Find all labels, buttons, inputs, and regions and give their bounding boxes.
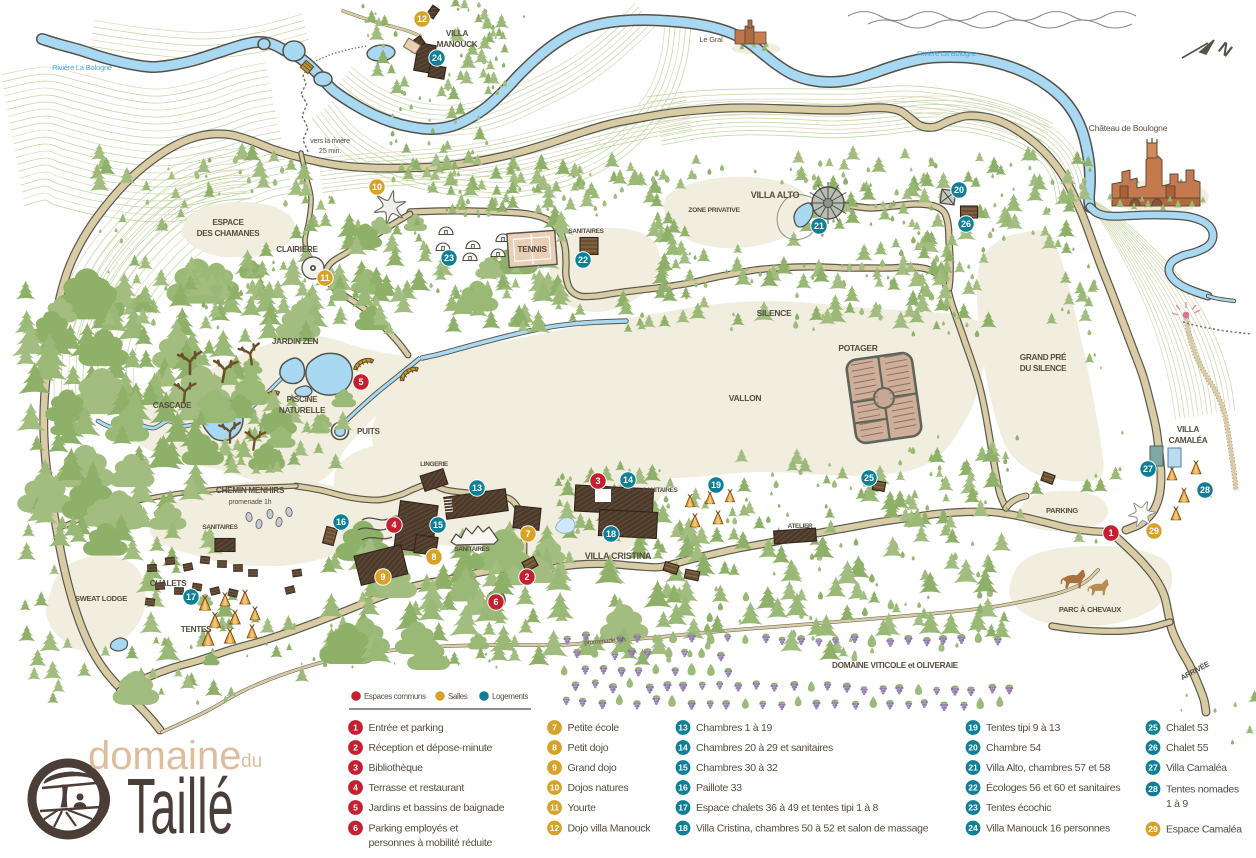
svg-text:DES CHAMANES: DES CHAMANES: [197, 229, 261, 238]
svg-text:14: 14: [678, 743, 688, 753]
svg-text:22: 22: [968, 783, 978, 793]
svg-text:SANITAIRES: SANITAIRES: [454, 546, 490, 553]
svg-text:Tentes écochic: Tentes écochic: [986, 802, 1051, 814]
svg-text:CLAIRIÈRE: CLAIRIÈRE: [276, 244, 318, 254]
svg-text:28: 28: [1148, 784, 1158, 794]
svg-text:PISCINE: PISCINE: [287, 395, 318, 404]
svg-text:VILLA ALTO: VILLA ALTO: [751, 190, 800, 200]
svg-text:PARC À CHEVAUX: PARC À CHEVAUX: [1059, 605, 1121, 614]
svg-text:Jardins et bassins de baignade: Jardins et bassins de baignade: [369, 802, 505, 814]
svg-text:Entrée et parking: Entrée et parking: [369, 722, 444, 734]
svg-text:Villa Cristina, chambres 50 à: Villa Cristina, chambres 50 à 52 et salo…: [696, 823, 929, 835]
svg-text:Tentes nomades: Tentes nomades: [1166, 784, 1239, 796]
svg-text:17: 17: [678, 803, 688, 813]
svg-text:18: 18: [606, 529, 616, 539]
svg-text:VILLA CRISTINA: VILLA CRISTINA: [585, 551, 652, 561]
svg-text:14: 14: [623, 475, 633, 485]
svg-text:Yourte: Yourte: [568, 802, 597, 814]
svg-text:PUITS: PUITS: [357, 427, 380, 436]
svg-text:Chalet 53: Chalet 53: [1166, 722, 1209, 734]
svg-text:SANITAIRES: SANITAIRES: [202, 524, 238, 531]
svg-text:Chalet 55: Chalet 55: [1166, 742, 1209, 754]
svg-text:9: 9: [552, 763, 557, 773]
svg-text:TENTES: TENTES: [181, 625, 212, 634]
svg-text:25: 25: [864, 473, 874, 483]
svg-text:11: 11: [550, 803, 559, 813]
svg-text:4: 4: [391, 520, 396, 530]
svg-text:CASCADE: CASCADE: [153, 401, 192, 410]
svg-text:6: 6: [353, 823, 358, 833]
svg-text:Salles: Salles: [448, 692, 468, 701]
svg-text:22: 22: [578, 255, 588, 265]
svg-text:CHEMIN MENHIRS: CHEMIN MENHIRS: [216, 486, 285, 495]
svg-text:Petit dojo: Petit dojo: [568, 742, 609, 754]
svg-text:27: 27: [1148, 763, 1158, 773]
svg-text:POTAGER: POTAGER: [838, 343, 877, 353]
svg-text:ESPACE: ESPACE: [212, 218, 244, 227]
svg-text:29: 29: [1149, 526, 1159, 536]
svg-text:Tentes tipi 9 à 13: Tentes tipi 9 à 13: [986, 722, 1060, 734]
svg-text:25 min.: 25 min.: [319, 146, 341, 155]
svg-text:3: 3: [353, 763, 358, 773]
svg-text:19: 19: [711, 480, 721, 490]
svg-text:21: 21: [968, 763, 978, 773]
svg-text:12: 12: [417, 14, 427, 24]
svg-text:Bibliothèque: Bibliothèque: [369, 762, 424, 774]
svg-text:PARKING: PARKING: [1046, 506, 1078, 515]
svg-text:Villa Manouck 16 personnes: Villa Manouck 16 personnes: [986, 823, 1110, 835]
svg-text:JARDIN ZEN: JARDIN ZEN: [272, 337, 319, 346]
svg-text:Logements: Logements: [492, 692, 528, 701]
svg-text:13: 13: [472, 483, 482, 493]
svg-text:CHALETS: CHALETS: [150, 579, 187, 588]
svg-text:Écologes 56 et 60 et sanitaire: Écologes 56 et 60 et sanitaires: [986, 781, 1120, 794]
svg-text:21: 21: [814, 221, 824, 231]
svg-text:Chambres 1 à 19: Chambres 1 à 19: [696, 722, 773, 734]
svg-text:Chambres 30 à 32: Chambres 30 à 32: [696, 762, 778, 774]
svg-text:Petite école: Petite école: [568, 722, 620, 734]
svg-text:VILLA: VILLA: [446, 29, 469, 38]
svg-text:17: 17: [186, 592, 196, 602]
svg-text:Espace Camaléa: Espace Camaléa: [1166, 824, 1242, 836]
svg-text:28: 28: [1200, 485, 1210, 495]
svg-text:15: 15: [433, 520, 443, 530]
svg-text:9: 9: [380, 572, 385, 582]
svg-text:Rivière La Bologne: Rivière La Bologne: [52, 63, 112, 72]
svg-text:26: 26: [1148, 743, 1158, 753]
svg-text:5: 5: [358, 377, 363, 387]
svg-text:DOMAINE VITICOLE et OLIVERAIE: DOMAINE VITICOLE et OLIVERAIE: [832, 661, 959, 670]
svg-text:ZONE PRIVATIVE: ZONE PRIVATIVE: [688, 207, 740, 214]
svg-text:20: 20: [968, 743, 978, 753]
svg-text:DU SILENCE: DU SILENCE: [1020, 364, 1067, 373]
svg-text:Villa Camaléa: Villa Camaléa: [1166, 762, 1227, 774]
svg-text:4: 4: [353, 783, 358, 793]
svg-text:11: 11: [320, 273, 330, 283]
svg-text:25: 25: [1148, 723, 1158, 733]
svg-text:personnes à mobilité réduite: personnes à mobilité réduite: [369, 837, 493, 849]
svg-text:Le Gral: Le Gral: [699, 35, 723, 44]
svg-text:18: 18: [678, 823, 688, 833]
svg-text:8: 8: [431, 552, 436, 562]
svg-text:Dojos natures: Dojos natures: [568, 782, 629, 794]
svg-text:10: 10: [550, 783, 560, 793]
svg-text:SANITAIRES: SANITAIRES: [568, 228, 604, 235]
svg-text:SANITAIRES: SANITAIRES: [642, 487, 678, 494]
svg-text:Chambre 54: Chambre 54: [986, 742, 1041, 754]
svg-text:23: 23: [444, 253, 454, 263]
svg-text:SWEAT LODGE: SWEAT LODGE: [75, 594, 127, 603]
svg-text:Chambres 20 à 29 et sanitaires: Chambres 20 à 29 et sanitaires: [696, 742, 833, 754]
svg-text:26: 26: [961, 219, 971, 229]
svg-text:Château de Boulogne: Château de Boulogne: [1089, 123, 1168, 133]
svg-text:Espaces communs: Espaces communs: [364, 692, 426, 701]
svg-text:Taillé: Taillé: [127, 763, 234, 850]
svg-text:Paillote 33: Paillote 33: [696, 782, 742, 794]
svg-text:13: 13: [678, 723, 688, 733]
svg-text:Terrasse et restaurant: Terrasse et restaurant: [369, 782, 465, 794]
svg-text:2: 2: [353, 743, 358, 753]
svg-text:5: 5: [353, 803, 358, 813]
svg-text:27: 27: [1143, 464, 1153, 474]
svg-text:Rivière La Bologne: Rivière La Bologne: [917, 49, 977, 58]
svg-text:VILLA: VILLA: [1177, 425, 1200, 434]
svg-text:NATURELLE: NATURELLE: [279, 406, 326, 415]
svg-text:Réception et dépose-minute: Réception et dépose-minute: [369, 742, 493, 754]
svg-text:7: 7: [552, 723, 557, 733]
svg-text:16: 16: [336, 517, 346, 527]
svg-text:GRAND PRÉ: GRAND PRÉ: [1020, 352, 1067, 362]
svg-text:MANOUCK: MANOUCK: [437, 40, 478, 49]
svg-text:3: 3: [595, 476, 600, 486]
svg-text:24: 24: [432, 53, 442, 63]
svg-text:vers la rivière: vers la rivière: [310, 136, 350, 145]
svg-text:1: 1: [1108, 528, 1113, 538]
svg-text:LINGERIE: LINGERIE: [420, 461, 449, 468]
svg-text:10: 10: [372, 182, 382, 192]
svg-text:1: 1: [353, 723, 358, 733]
svg-text:20: 20: [954, 185, 964, 195]
svg-text:TENNIS: TENNIS: [517, 244, 547, 254]
svg-text:du: du: [241, 751, 262, 772]
svg-text:29: 29: [1148, 824, 1158, 834]
svg-text:Dojo villa Manouck: Dojo villa Manouck: [568, 823, 652, 835]
svg-text:VALLON: VALLON: [729, 393, 762, 403]
svg-text:Villa Alto, chambres 57 et 58: Villa Alto, chambres 57 et 58: [986, 762, 1111, 774]
svg-text:6: 6: [493, 597, 498, 607]
svg-text:promenade 1h: promenade 1h: [229, 499, 272, 506]
svg-text:15: 15: [678, 763, 688, 773]
svg-text:24: 24: [968, 823, 978, 833]
svg-text:Grand dojo: Grand dojo: [568, 762, 617, 774]
svg-text:16: 16: [678, 783, 688, 793]
svg-text:SILENCE: SILENCE: [757, 308, 792, 318]
svg-text:Espace chalets 36 à 49 et tent: Espace chalets 36 à 49 et tentes tipi 1 …: [696, 802, 879, 814]
svg-text:1 à 9: 1 à 9: [1166, 798, 1188, 810]
svg-text:2: 2: [524, 572, 529, 582]
svg-text:23: 23: [968, 803, 978, 813]
svg-text:Parking employés et: Parking employés et: [369, 823, 459, 835]
svg-text:19: 19: [968, 723, 978, 733]
svg-text:12: 12: [550, 823, 560, 833]
svg-text:8: 8: [552, 743, 557, 753]
svg-text:CAMALÉA: CAMALÉA: [1169, 435, 1208, 445]
svg-text:ATELIER: ATELIER: [788, 523, 813, 530]
svg-text:7: 7: [525, 529, 530, 539]
